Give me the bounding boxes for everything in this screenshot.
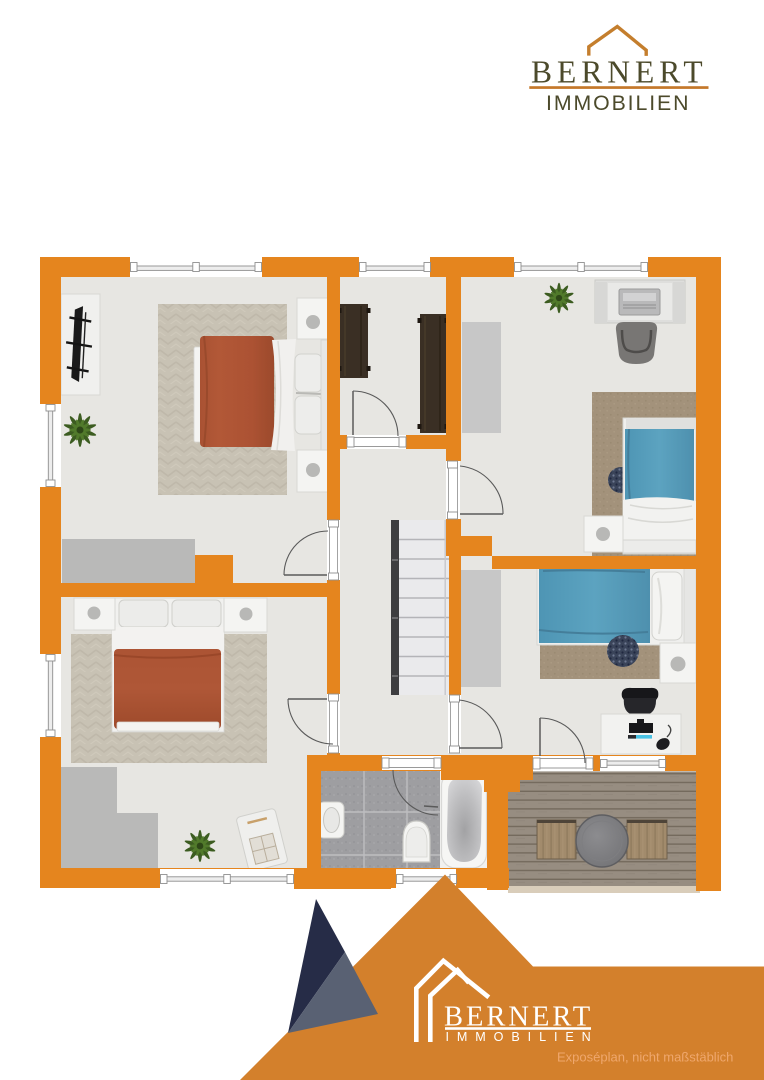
svg-text:IMMOBILIEN: IMMOBILIEN <box>446 1030 599 1044</box>
svg-text:Exposéplan, nicht maßstäblich: Exposéplan, nicht maßstäblich <box>557 1050 733 1065</box>
svg-text:BERNERT: BERNERT <box>531 55 708 90</box>
svg-text:IMMOBILIEN: IMMOBILIEN <box>546 91 690 115</box>
